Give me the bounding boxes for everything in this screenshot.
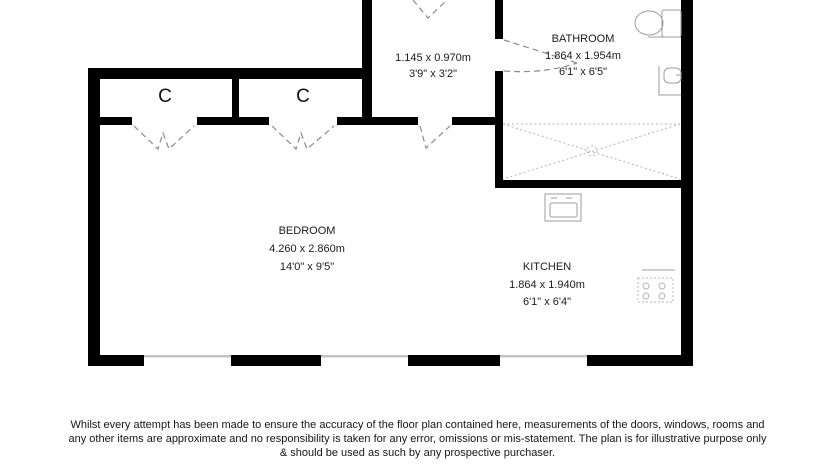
wall-bottom-b	[231, 355, 321, 366]
closet-right-label: C	[296, 87, 310, 107]
bathroom-dimensions-imperial: 6'1" x 6'5"	[559, 66, 607, 78]
closet-door-swing-left-icon	[134, 126, 194, 149]
floorplan-page: C C 1.145 x 0.970m 3'9" x 3'2" BATHROOM …	[0, 0, 835, 467]
hallway-dimensions-imperial: 3'9" x 3'2"	[409, 68, 457, 80]
window-1	[144, 355, 231, 358]
kitchen-label: KITCHEN	[523, 261, 571, 273]
disclaimer: Whilst every attempt has been made to en…	[0, 418, 835, 460]
kitchen-dimensions-imperial: 6'1" x 6'4"	[523, 296, 571, 308]
bedroom-dimensions-imperial: 14'0" x 9'5"	[280, 261, 334, 273]
wall-closet-bottom-c	[337, 117, 418, 125]
wall-bathroom-left-upper	[495, 0, 503, 39]
wall-bathroom-bottom	[495, 180, 693, 188]
wall-hall-left	[362, 0, 372, 125]
disclaimer-line-1: Whilst every attempt has been made to en…	[0, 418, 835, 432]
window-2	[321, 355, 408, 358]
wall-closet-divider	[232, 79, 239, 125]
disclaimer-line-2: any other items are approximate and no r…	[0, 432, 835, 446]
wall-bottom-c	[408, 355, 500, 366]
bathroom-label: BATHROOM	[552, 33, 615, 45]
wall-left	[88, 68, 100, 366]
hallway-dimensions-metric: 1.145 x 0.970m	[395, 52, 471, 64]
bathroom-sink-icon	[659, 66, 681, 95]
wall-bathroom-left-lower	[495, 71, 503, 188]
hob-icon	[638, 270, 675, 302]
kitchen-dimensions-metric: 1.864 x 1.940m	[509, 279, 585, 291]
disclaimer-line-3: & should be used as such by any prospect…	[0, 446, 835, 460]
closet-left-label: C	[158, 87, 172, 107]
bedroom-label: BEDROOM	[279, 225, 336, 237]
shower-icon	[503, 124, 680, 179]
wall-closet-bottom-a	[88, 117, 132, 125]
bathroom-dimensions-metric: 1.864 x 1.954m	[545, 50, 621, 62]
windows	[144, 355, 587, 358]
bedroom-dimensions-metric: 4.260 x 2.860m	[269, 243, 345, 255]
entry-door-swing-icon	[413, 0, 447, 18]
kitchen-sink-icon	[545, 194, 581, 221]
bedroom-door-swing-icon	[420, 126, 450, 148]
wall-bottom-d	[587, 355, 693, 366]
closet-door-swing-right-icon	[272, 126, 334, 149]
toilet-icon	[635, 10, 681, 37]
window-3	[500, 355, 587, 358]
wall-top	[88, 68, 372, 79]
wall-bottom-a	[88, 355, 144, 366]
